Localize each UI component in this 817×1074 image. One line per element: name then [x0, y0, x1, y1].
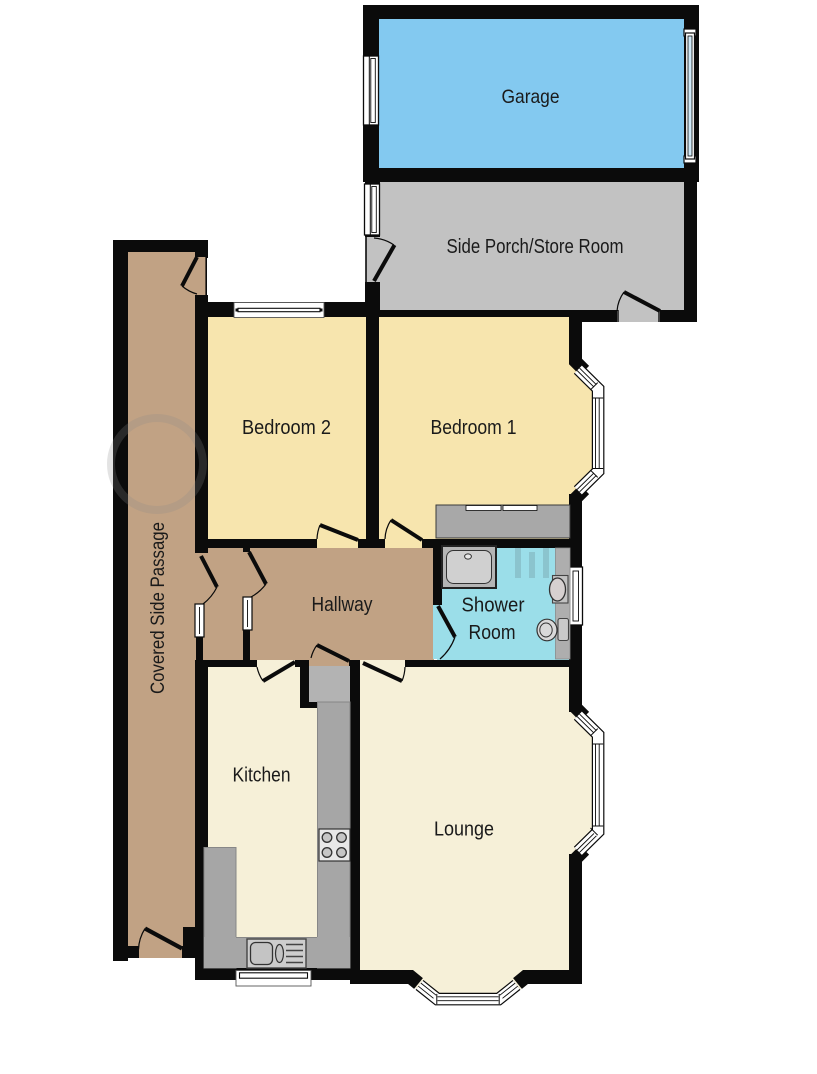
svg-text:Hallway: Hallway: [312, 594, 373, 616]
svg-text:Covered Side Passage: Covered Side Passage: [148, 522, 169, 694]
svg-text:Lounge: Lounge: [434, 819, 494, 841]
svg-text:Bedroom 1: Bedroom 1: [431, 417, 517, 439]
svg-text:Kitchen: Kitchen: [233, 765, 291, 787]
svg-text:Side Porch/Store Room: Side Porch/Store Room: [447, 236, 624, 258]
svg-text:Shower: Shower: [462, 595, 525, 617]
svg-text:Bedroom 2: Bedroom 2: [242, 417, 331, 439]
svg-text:Garage: Garage: [502, 86, 560, 108]
svg-text:Room: Room: [469, 622, 516, 644]
